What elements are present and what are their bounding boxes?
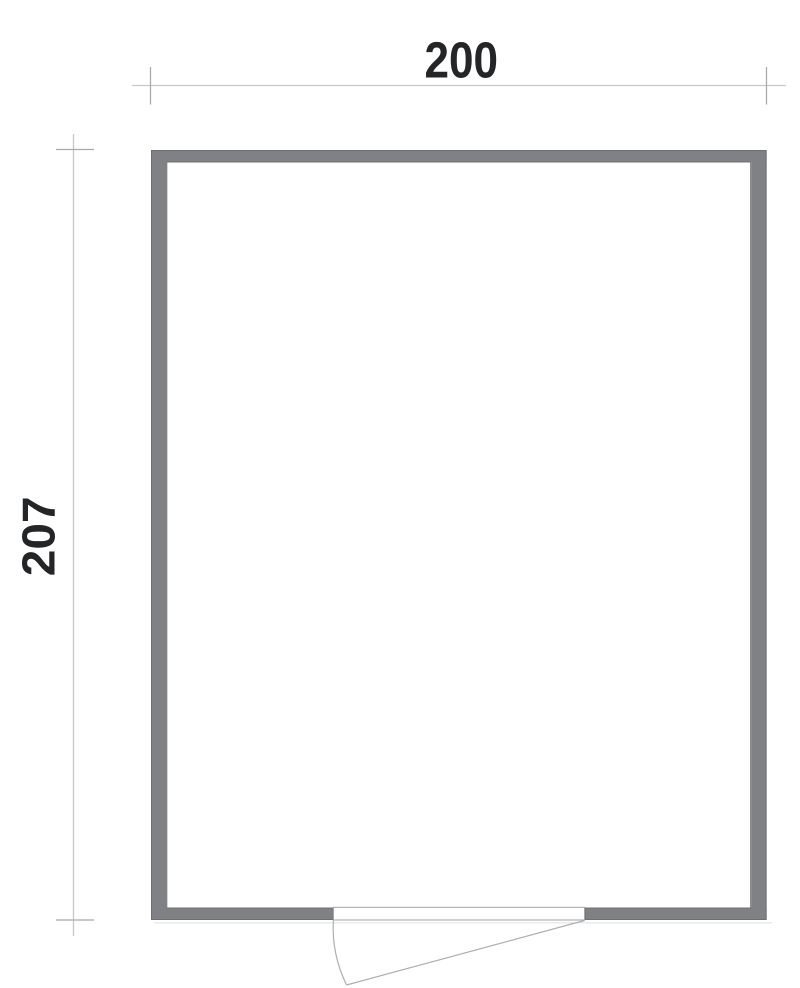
svg-text:207: 207 (12, 496, 64, 576)
svg-text:200: 200 (425, 33, 499, 90)
